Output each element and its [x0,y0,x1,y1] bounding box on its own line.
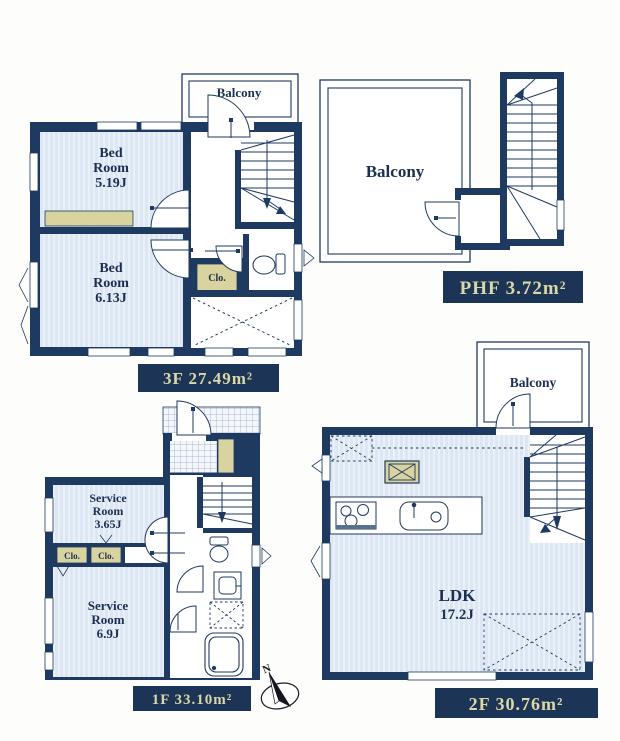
closet2-1f-label: Clo. [98,551,114,561]
floorplan-page: Balcony Clo. [0,0,620,741]
bedroom1-label-line3: 5.19J [95,176,127,191]
compass-icon: N [259,662,302,713]
ldk-label-line2: 17.2J [440,607,474,623]
area-label-2f-text: 2F 30.76m² [469,694,564,714]
area-label-phf: PHF 3.72m² [443,271,583,303]
bedroom1-label-line1: Bed [99,146,123,161]
service-room2-line3: 6.9J [97,626,120,641]
balcony-phf-label: Balcony [366,162,425,181]
area-label-phf-text: PHF 3.72m² [460,278,567,299]
bedroom1-closet-strip [45,211,133,226]
area-label-2f: 2F 30.76m² [435,688,598,718]
wall-segment [235,222,294,229]
floor-1f-plan: Clo. Clo. Service Room 3.65J Service Ro [45,401,301,713]
area-label-3f: 3F 27.49m² [138,364,279,392]
balcony-2f-label: Balcony [510,375,557,390]
toilet-icon [253,254,285,274]
floor-2f-plan: Balcony [311,342,598,718]
toilet-icon [210,537,228,562]
service-room1-line3: 3.65J [95,517,122,531]
closet-3f-label: Clo. [208,273,226,284]
bedroom1-label-line2: Room [93,161,129,176]
kitchen-counter [330,497,482,534]
floorplan-drawing: Balcony Clo. [0,0,620,741]
compass-north-label: N [261,662,273,676]
service-room1-line1: Service [89,491,127,505]
sink-icon [400,502,448,530]
ldk-label-line1: LDK [439,586,477,605]
floor-3f-plan: Balcony Clo. [19,74,314,392]
bedroom2-label-line2: Room [93,276,129,291]
washroom-1f [203,570,252,630]
range-hood-icon [385,461,419,483]
area-label-1f-text: 1F 33.10m² [152,692,233,708]
balcony-2f: Balcony [477,342,589,429]
hall-3f-floor [191,132,294,348]
bedroom2-label-line3: 6.13J [95,291,127,306]
genkan-1f [170,441,217,473]
area-label-1f: 1F 33.10m² [133,686,251,711]
stairs-2f [524,435,585,543]
service-room2-line1: Service [88,598,129,613]
stairs-1f [197,477,252,528]
closet1-1f-label: Clo. [64,551,80,561]
shoe-cabinet-1f [218,439,234,473]
floor-phf-plan: Balcony P [320,72,583,303]
toilet-room-1f [203,533,271,570]
area-label-3f-text: 3F 27.49m² [163,369,253,388]
stove-icon [336,502,376,529]
service-room2-line2: Room [91,612,124,627]
bedroom2-label-line1: Bed [99,261,123,276]
service-room1-line2: Room [93,504,124,518]
window-phf [557,200,564,230]
balcony-phf: Balcony [320,80,470,262]
bathtub-icon [205,633,243,676]
washbasin-icon [214,572,241,599]
